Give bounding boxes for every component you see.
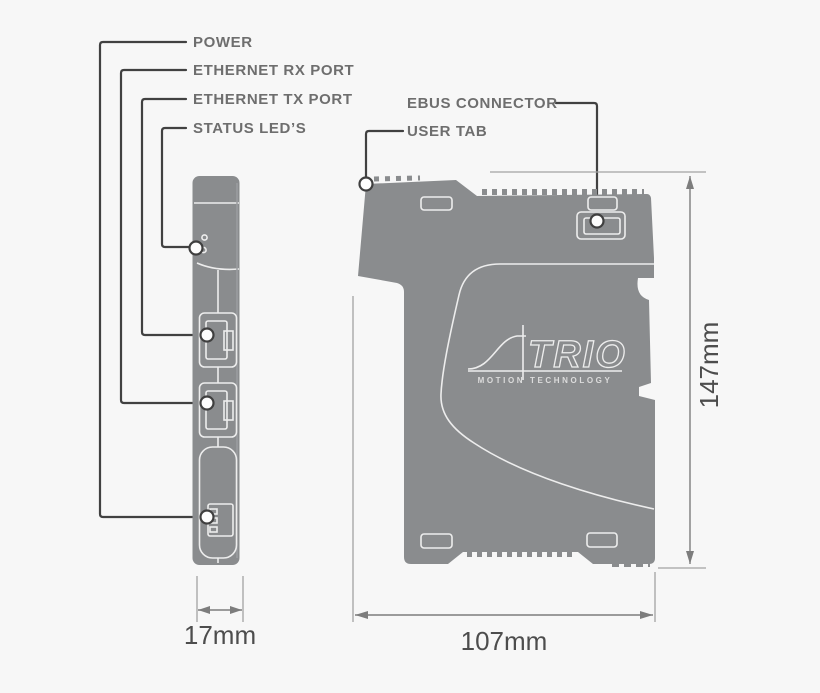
lower-panel-outline <box>200 447 237 558</box>
ebus-marker-icon <box>591 215 604 228</box>
dimension-side-width: 17mm <box>184 576 256 650</box>
ebus-connector-label: EBUS CONNECTOR <box>407 95 558 112</box>
arrow-right-icon <box>640 611 653 619</box>
front-height-value: 147mm <box>694 322 724 409</box>
arrow-right-icon <box>230 606 242 614</box>
arrow-down-icon <box>686 551 694 564</box>
side-width-value: 17mm <box>184 620 256 650</box>
user-tab-label: USER TAB <box>407 123 487 140</box>
leader-line-status-leds <box>162 128 190 247</box>
power-section <box>200 447 237 558</box>
power-marker-icon <box>201 511 214 524</box>
status-leds-marker-icon <box>190 242 203 255</box>
ethernet-rx-marker-icon <box>201 397 214 410</box>
status-leds-label: STATUS LED’S <box>193 120 306 137</box>
arrow-left-icon <box>355 611 368 619</box>
trio-logo-tagline: MOTION TECHNOLOGY <box>478 376 613 385</box>
callout-labels: POWER ETHERNET RX PORT ETHERNET TX PORT … <box>193 34 558 140</box>
power-label: POWER <box>193 34 253 51</box>
ethernet-tx-port-label: ETHERNET TX PORT <box>193 91 353 108</box>
side-view-module <box>193 176 240 565</box>
front-width-value: 107mm <box>461 626 548 656</box>
arrow-up-icon <box>686 176 694 189</box>
top-left-teeth <box>374 178 420 179</box>
user-tab-marker-icon <box>360 178 373 191</box>
ethernet-rx-port-label: ETHERNET RX PORT <box>193 62 354 79</box>
leader-line-user-tab <box>366 131 403 177</box>
ethernet-tx-marker-icon <box>201 329 214 342</box>
trio-logo-wordmark: TRIO <box>528 334 627 376</box>
front-view-module: TRIO MOTION TECHNOLOGY <box>358 178 655 565</box>
diagram-canvas: POWER ETHERNET RX PORT ETHERNET TX PORT … <box>0 0 820 693</box>
device-dimension-diagram: POWER ETHERNET RX PORT ETHERNET TX PORT … <box>0 0 820 693</box>
arrow-left-icon <box>198 606 210 614</box>
leader-line-power <box>100 42 201 517</box>
leader-lines-left <box>100 42 201 517</box>
